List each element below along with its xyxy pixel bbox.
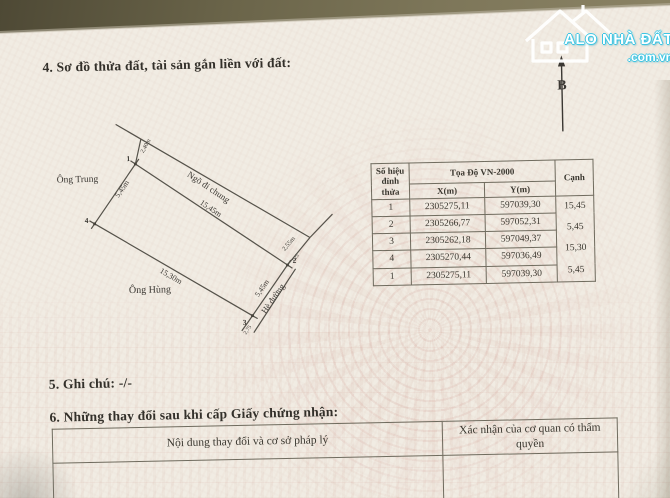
- changes-table: Nội dung thay đổi và cơ sở pháp lý Xác n…: [52, 417, 620, 498]
- north-label: B: [557, 78, 567, 93]
- changes-empty-confirm-cell: [443, 452, 620, 498]
- vertex-marker: [286, 264, 289, 267]
- col-header-group: Tọa Độ VN-2000: [409, 160, 555, 184]
- cell-no: 3: [372, 233, 410, 251]
- coordinate-table-wrap: Số hiệu đỉnh thửa Tọa Độ VN-2000 Cạnh X(…: [370, 159, 595, 286]
- cell-no: 2: [372, 216, 410, 234]
- cell-y: 597039,30: [485, 196, 556, 215]
- plot-edge-top: [130, 157, 292, 271]
- col-header-x: X(m): [409, 182, 484, 199]
- changes-col-confirm-header: Xác nhận của cơ quan có thẩm quyền: [442, 418, 618, 456]
- cell-x: 2305262,18: [410, 232, 485, 251]
- offset-corner-label: 2,55m: [281, 235, 297, 252]
- alley-outer-line: [116, 121, 310, 242]
- canh-value: 5,45: [557, 259, 594, 281]
- logo-name: ALO NHÀ ĐẤT: [564, 31, 670, 48]
- cell-x: 2305270,44: [411, 249, 486, 268]
- offset-v2-label: 1,25: [291, 253, 301, 263]
- vertex-label-4: 4: [85, 216, 89, 225]
- house-roof-2: [572, 11, 610, 33]
- changes-empty-content-cell: [53, 455, 445, 498]
- coordinate-table: Số hiệu đỉnh thửa Tọa Độ VN-2000 Cạnh X(…: [370, 159, 595, 286]
- section4-title: 4. Sơ đồ thửa đất, tài sản gắn liền với …: [42, 55, 291, 76]
- cell-no: 1: [372, 199, 410, 217]
- alley-label: Ngõ đi chung: [186, 169, 233, 205]
- cell-y: 597039,30: [486, 265, 557, 284]
- canh-column: 15,45 5,45 15,30 5,45: [556, 195, 596, 281]
- cell-x: 2305266,77: [410, 215, 485, 234]
- cell-no: 1: [373, 268, 411, 286]
- col-header-seq: Số hiệu đỉnh thửa: [371, 163, 410, 200]
- canh-value: 15,30: [557, 238, 594, 260]
- plot-edge-bottom: [89, 217, 257, 322]
- vertex-marker: [251, 314, 254, 317]
- site-watermark: ALO NHÀ ĐẤT .com.vn: [515, 0, 670, 75]
- owner-bottom-label: Ông Hùng: [129, 283, 171, 296]
- vertex-marker: [134, 163, 137, 166]
- table-row: 1 2305275,11 597039,30 15,45 5,45 15,30 …: [372, 195, 594, 217]
- changes-table-wrap: Nội dung thay đổi và cơ sở pháp lý Xác n…: [52, 417, 620, 498]
- col-header-seq-line1: Số hiệu: [372, 165, 409, 176]
- house-window: [542, 43, 551, 52]
- corner-shadow-bottom-right: [620, 440, 670, 498]
- owner-left-label: Ông Trung: [57, 173, 99, 186]
- offset-v1-label: 2,40m: [140, 138, 153, 154]
- cell-x: 2305275,11: [411, 266, 486, 285]
- dim-bottom: 15,30m: [158, 266, 184, 286]
- cell-y: 597036,49: [486, 247, 557, 266]
- canh-value: 15,45: [556, 196, 593, 218]
- logo-domain: .com.vn: [628, 50, 670, 64]
- section6-title: 6. Những thay đổi sau khi cấp Giấy chứng…: [49, 404, 338, 426]
- col-header-canh: Cạnh: [555, 159, 594, 196]
- vertex-marker: [93, 222, 96, 225]
- road-corner-line: [309, 214, 332, 237]
- col-header-y: Y(m): [484, 181, 555, 197]
- vertex-label-3: 3: [243, 318, 247, 327]
- cell-no: 4: [373, 250, 411, 268]
- canh-value: 5,45: [557, 217, 594, 239]
- cell-x: 2305275,11: [410, 197, 485, 216]
- cell-y: 597052,31: [485, 213, 556, 232]
- cell-y: 597049,37: [485, 230, 556, 249]
- col-header-seq-line2: đỉnh thửa: [372, 176, 409, 197]
- plot-diagram: 1 2 3 4 Ông Trung Ông Hùng Ngõ đi chung …: [37, 110, 362, 366]
- section5-note: 5. Ghi chú: -/-: [49, 375, 133, 393]
- paper-right-shadow: [654, 80, 670, 498]
- certificate-photo: 4. Sơ đồ thửa đất, tài sản gắn liền với …: [0, 0, 670, 498]
- vertex-label-1: 1: [126, 154, 130, 163]
- dim-left: 5,45m: [113, 178, 131, 199]
